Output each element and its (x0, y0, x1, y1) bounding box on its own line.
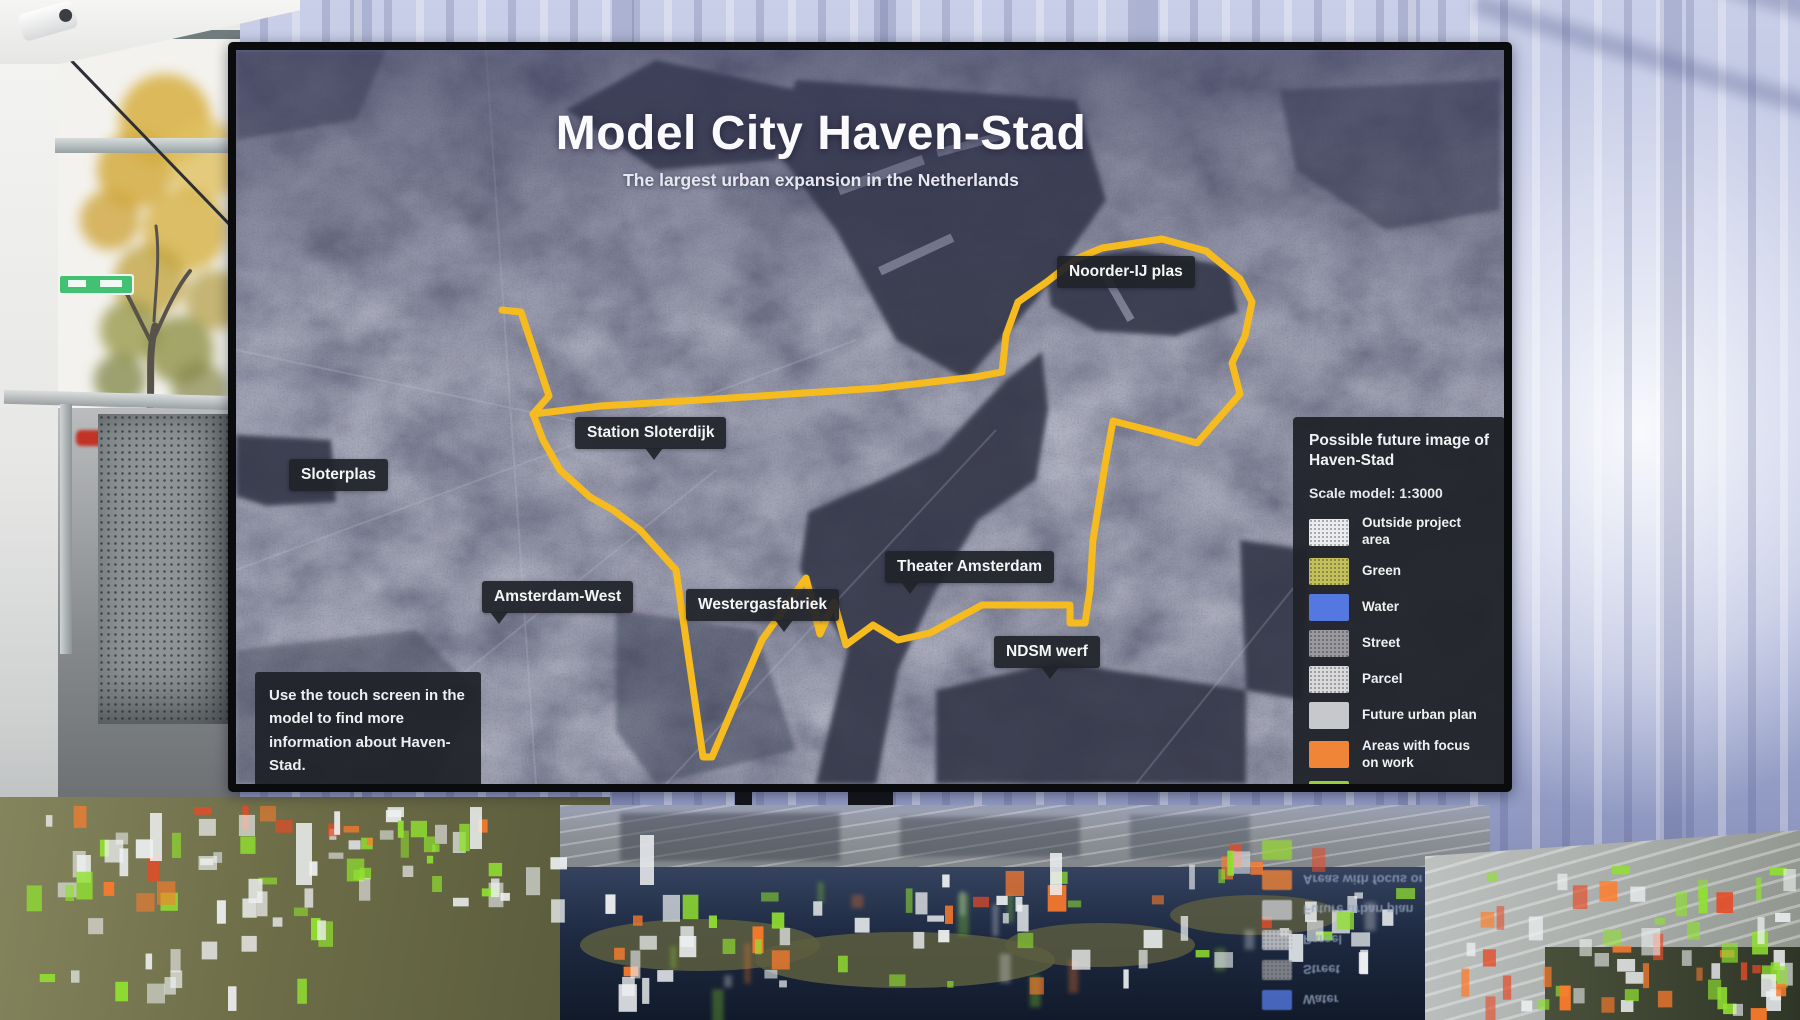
reflected-label: Areas with focus on work (1303, 873, 1422, 888)
haven-stad-map: Model City Haven-Stad The largest urban … (236, 50, 1504, 784)
legend-row: Vibrant city streets (1309, 781, 1489, 784)
reflected-swatch (1262, 960, 1292, 980)
reflected-swatch (1262, 930, 1292, 950)
reflected-label: Future urban plan (1303, 903, 1414, 918)
legend-row: Green (1309, 558, 1489, 585)
reflected-swatch (1262, 900, 1292, 920)
map-label-ndsm-werf: NDSM werf (994, 636, 1100, 668)
legend-row: Future urban plan (1309, 702, 1489, 729)
legend-row: Outside project area (1309, 515, 1489, 549)
exit-sign-icon (58, 274, 134, 295)
reflected-label: Water (1303, 993, 1339, 1008)
legend-row: Street (1309, 630, 1489, 657)
legend-swatch-work-areas (1309, 741, 1349, 768)
map-label-amsterdam-west: Amsterdam-West (482, 581, 633, 613)
legend-swatch-street (1309, 630, 1349, 657)
legend-swatch-future-urban-plan (1309, 702, 1349, 729)
map-label-theater-amsterdam: Theater Amsterdam (885, 551, 1054, 583)
legend-title: Possible future image of Haven-Stad (1309, 431, 1489, 471)
map-label-noorder-ij-plas: Noorder-IJ plas (1057, 256, 1195, 288)
reflected-swatch (1262, 840, 1292, 860)
exhibit-photo: Water Street Parcel Future urban plan Ar… (0, 0, 1800, 1020)
reflected-swatch (1262, 870, 1292, 890)
legend-row: Areas with focus on work (1309, 738, 1489, 772)
touchscreen-info-box: Use the touch screen in the model to fin… (255, 672, 481, 784)
legend-swatch-outside (1309, 519, 1349, 546)
display-screen[interactable]: Model City Haven-Stad The largest urban … (228, 42, 1512, 792)
legend-scale-note: Scale model: 1:3000 (1309, 485, 1489, 501)
legend-swatch-water (1309, 594, 1349, 621)
reflected-swatch (1262, 990, 1292, 1010)
reflected-legend: Water Street Parcel Future urban plan Ar… (1262, 835, 1422, 1015)
legend-swatch-parcel (1309, 666, 1349, 693)
reflected-label: Street (1303, 963, 1340, 978)
perforated-metal-panel (98, 414, 240, 724)
autumn-tree (58, 36, 240, 412)
map-label-station-sloterdijk: Station Sloterdijk (575, 417, 726, 449)
model-buildings (0, 795, 1800, 1020)
legend-swatch-green (1309, 558, 1349, 585)
map-legend: Possible future image of Haven-Stad Scal… (1293, 417, 1504, 784)
map-label-sloterplas: Sloterplas (289, 459, 388, 491)
physical-scale-model: Water Street Parcel Future urban plan Ar… (0, 795, 1800, 1020)
reflected-label: Parcel (1303, 933, 1342, 948)
legend-row: Parcel (1309, 666, 1489, 693)
page-subtitle: The largest urban expansion in the Nethe… (236, 170, 1406, 191)
map-label-westergasfabriek: Westergasfabriek (686, 589, 839, 621)
page-title: Model City Haven-Stad (236, 106, 1406, 161)
window-view (58, 36, 240, 412)
legend-swatch-vibrant-streets (1309, 781, 1349, 784)
railing-post (60, 404, 72, 654)
legend-row: Water (1309, 594, 1489, 621)
